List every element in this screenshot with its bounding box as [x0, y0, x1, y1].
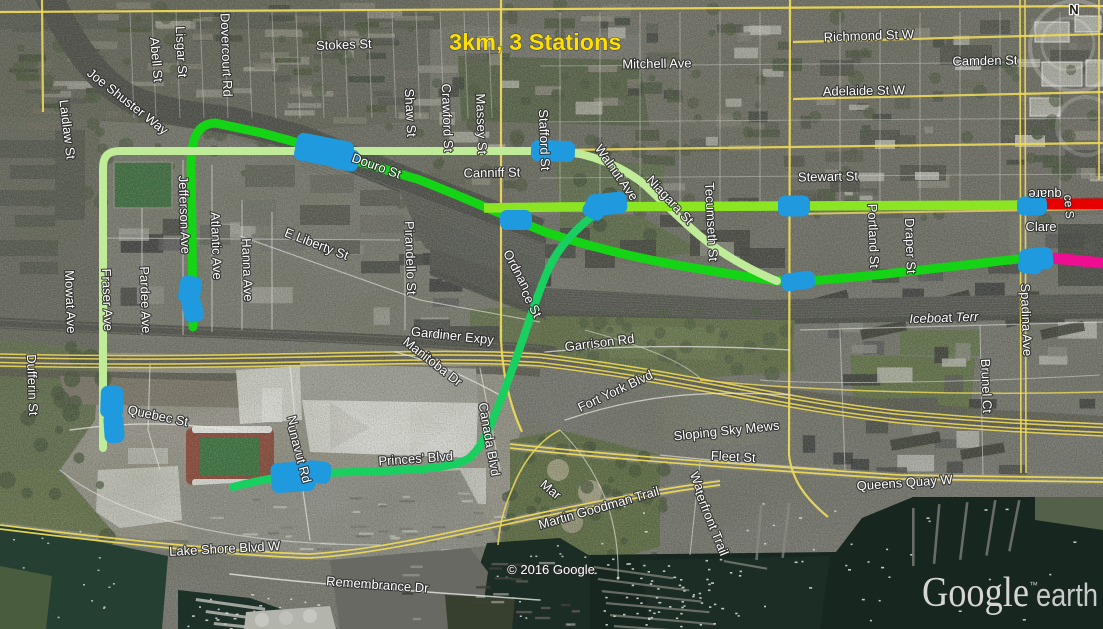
svg-text:Hanna Ave: Hanna Ave	[239, 238, 256, 302]
svg-text:Shaw St: Shaw St	[402, 88, 420, 138]
svg-text:Clare: Clare	[1025, 219, 1056, 234]
svg-text:© 2016 Google: © 2016 Google	[507, 562, 595, 577]
svg-text:Crawford St: Crawford St	[439, 83, 456, 153]
svg-text:Massey St: Massey St	[473, 93, 490, 155]
svg-text:Draper St: Draper St	[902, 218, 919, 275]
svg-text:Fleet St: Fleet St	[710, 448, 756, 465]
svg-text:Fraser Ave: Fraser Ave	[99, 268, 116, 331]
svg-text:Adelaide St W: Adelaide St W	[823, 82, 906, 98]
svg-text:Canniff St: Canniff St	[463, 164, 520, 180]
svg-text:Brunel Ct: Brunel Ct	[978, 358, 995, 413]
svg-text:Richmond St W: Richmond St W	[823, 26, 914, 44]
svg-text:earth: earth	[1036, 577, 1098, 613]
svg-text:Stewart St: Stewart St	[798, 168, 859, 184]
svg-text:Dovercourt Rd: Dovercourt Rd	[218, 13, 236, 97]
svg-text:Stafford St: Stafford St	[536, 109, 553, 171]
svg-text:quare: quare	[1028, 187, 1061, 202]
svg-text:Dufferin St: Dufferin St	[24, 354, 41, 416]
svg-text:Portland St: Portland St	[865, 203, 882, 268]
svg-text:Google: Google	[922, 570, 1029, 616]
svg-text:N: N	[1069, 2, 1078, 17]
svg-text:Mowat Ave: Mowat Ave	[62, 270, 79, 334]
svg-text:Jefferson Ave: Jefferson Ave	[176, 175, 194, 254]
svg-text:Lisgar St: Lisgar St	[173, 26, 191, 78]
svg-text:Atlantic Ave: Atlantic Ave	[208, 212, 225, 280]
svg-text:Pardee Ave: Pardee Ave	[137, 266, 154, 333]
svg-text:Spadina Ave: Spadina Ave	[1018, 283, 1036, 356]
svg-text:Stokes St: Stokes St	[316, 36, 373, 53]
svg-text:Iceboat Terr: Iceboat Terr	[909, 309, 979, 326]
svg-text:ce S: ce S	[1061, 194, 1077, 219]
svg-text:Camden St: Camden St	[952, 52, 1018, 68]
svg-text:3km, 3 Stations: 3km, 3 Stations	[449, 29, 621, 55]
svg-text:Pirandello St: Pirandello St	[402, 221, 420, 296]
svg-text:Mitchell Ave: Mitchell Ave	[622, 55, 691, 71]
